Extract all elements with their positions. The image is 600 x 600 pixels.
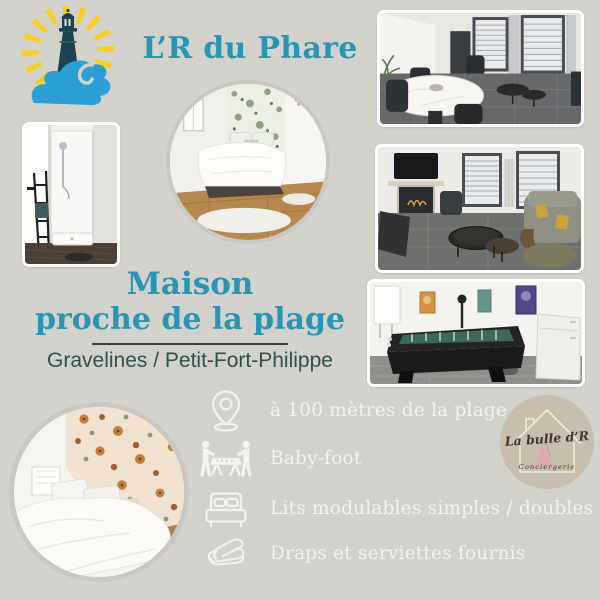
feature-linens-provided: Draps et serviettes fournis: [198, 531, 525, 575]
feature-label: Draps et serviettes fournis: [270, 543, 525, 564]
foosball-players-icon: [198, 436, 254, 480]
headline-line2: proche de la plage: [20, 302, 360, 338]
lighthouse-wave-graphic: [22, 5, 114, 106]
rental-flyer: L’R du Phare: [0, 0, 600, 600]
house-outline-icon: La bulle d’R Conciergerie: [499, 394, 595, 490]
feature-baby-foot: Baby-foot: [198, 436, 362, 480]
page-title: L’R du Phare: [128, 31, 372, 66]
feature-label: Lits modulables simples / doubles: [270, 498, 593, 519]
double-bed-icon: [198, 486, 254, 530]
folded-linens-icon: [198, 532, 254, 574]
photo-dining-room: [377, 10, 584, 127]
photo-games-room: [367, 279, 585, 387]
map-pin-icon: [198, 387, 254, 433]
living-room-illustration: [378, 147, 581, 270]
headline-line1: Maison: [20, 266, 360, 302]
headline-divider: [92, 343, 288, 345]
bedroom-green-illustration: [170, 84, 326, 240]
lighthouse-icon: [22, 5, 114, 106]
headline-block: Maison proche de la plage Gravelines / P…: [20, 266, 360, 374]
games-room-illustration: [370, 282, 582, 384]
agency-badge: La bulle d’R Conciergerie: [499, 394, 595, 490]
photo-bedroom-floral: [9, 402, 189, 582]
bedroom-floral-illustration: [14, 407, 184, 577]
feature-label: Baby-foot: [270, 448, 362, 469]
location-subtitle: Gravelines / Petit-Fort-Philippe: [20, 348, 360, 374]
photo-living-room: [375, 144, 584, 273]
dining-room-illustration: [380, 13, 581, 124]
feature-label: à 100 mètres de la plage: [270, 400, 507, 421]
feature-distance-to-beach: à 100 mètres de la plage: [198, 388, 507, 432]
photo-bedroom-green-floral: [166, 80, 330, 244]
photo-shower-room: [22, 122, 120, 267]
feature-modular-beds: Lits modulables simples / doubles: [198, 486, 593, 530]
shower-room-illustration: [25, 125, 117, 264]
agency-tagline: Conciergerie: [519, 463, 576, 471]
